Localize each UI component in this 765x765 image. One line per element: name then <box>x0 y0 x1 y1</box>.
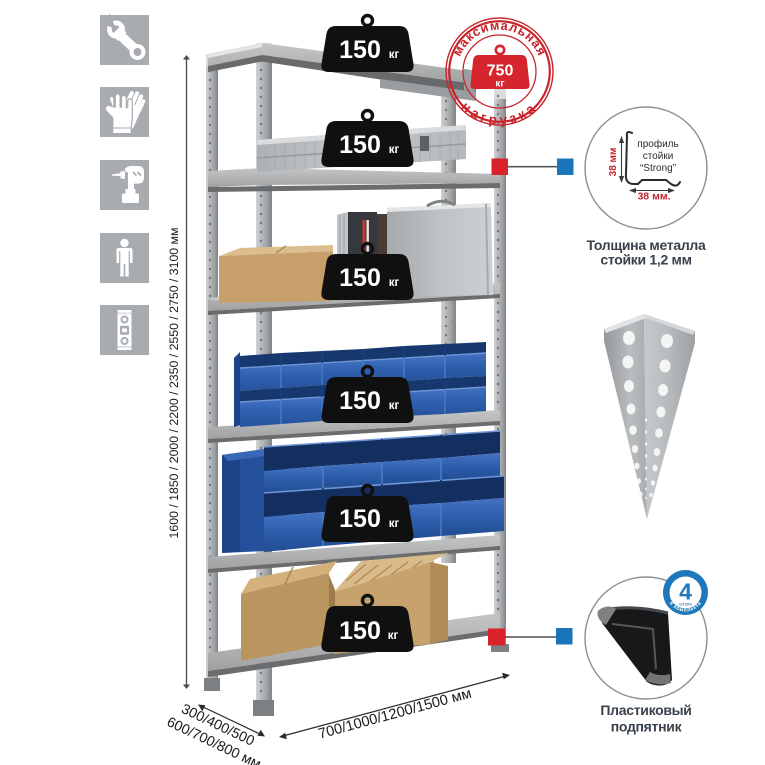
svg-text:кг: кг <box>389 518 400 530</box>
svg-text:кг: кг <box>389 49 400 61</box>
svg-text:кг: кг <box>389 144 400 156</box>
svg-text:штуки: штуки <box>679 602 692 607</box>
svg-text:кг: кг <box>389 277 400 289</box>
svg-text:стойки 1,2 мм: стойки 1,2 мм <box>600 252 691 268</box>
svg-text:кг: кг <box>495 79 504 90</box>
svg-text:150: 150 <box>339 36 381 64</box>
svg-text:профиль: профиль <box>637 138 678 150</box>
svg-text:38 мм.: 38 мм. <box>637 191 670 203</box>
svg-text:стойки: стойки <box>643 151 674 162</box>
svg-text:750: 750 <box>487 63 514 80</box>
svg-text:150: 150 <box>339 505 381 533</box>
svg-text:150: 150 <box>339 264 381 292</box>
svg-text:подпятник: подпятник <box>611 719 683 735</box>
svg-text:“Strong”: “Strong” <box>640 163 676 174</box>
svg-text:38 мм: 38 мм <box>608 148 619 177</box>
svg-text:Пластиковый: Пластиковый <box>600 702 691 718</box>
svg-text:1600 / 1850 / 2000 / 2200 / 23: 1600 / 1850 / 2000 / 2200 / 2350 / 2550 … <box>167 228 181 539</box>
svg-text:кг: кг <box>388 630 399 642</box>
svg-text:кг: кг <box>389 400 400 412</box>
svg-text:150: 150 <box>339 617 381 645</box>
svg-text:150: 150 <box>339 131 381 159</box>
svg-text:150: 150 <box>339 387 381 415</box>
